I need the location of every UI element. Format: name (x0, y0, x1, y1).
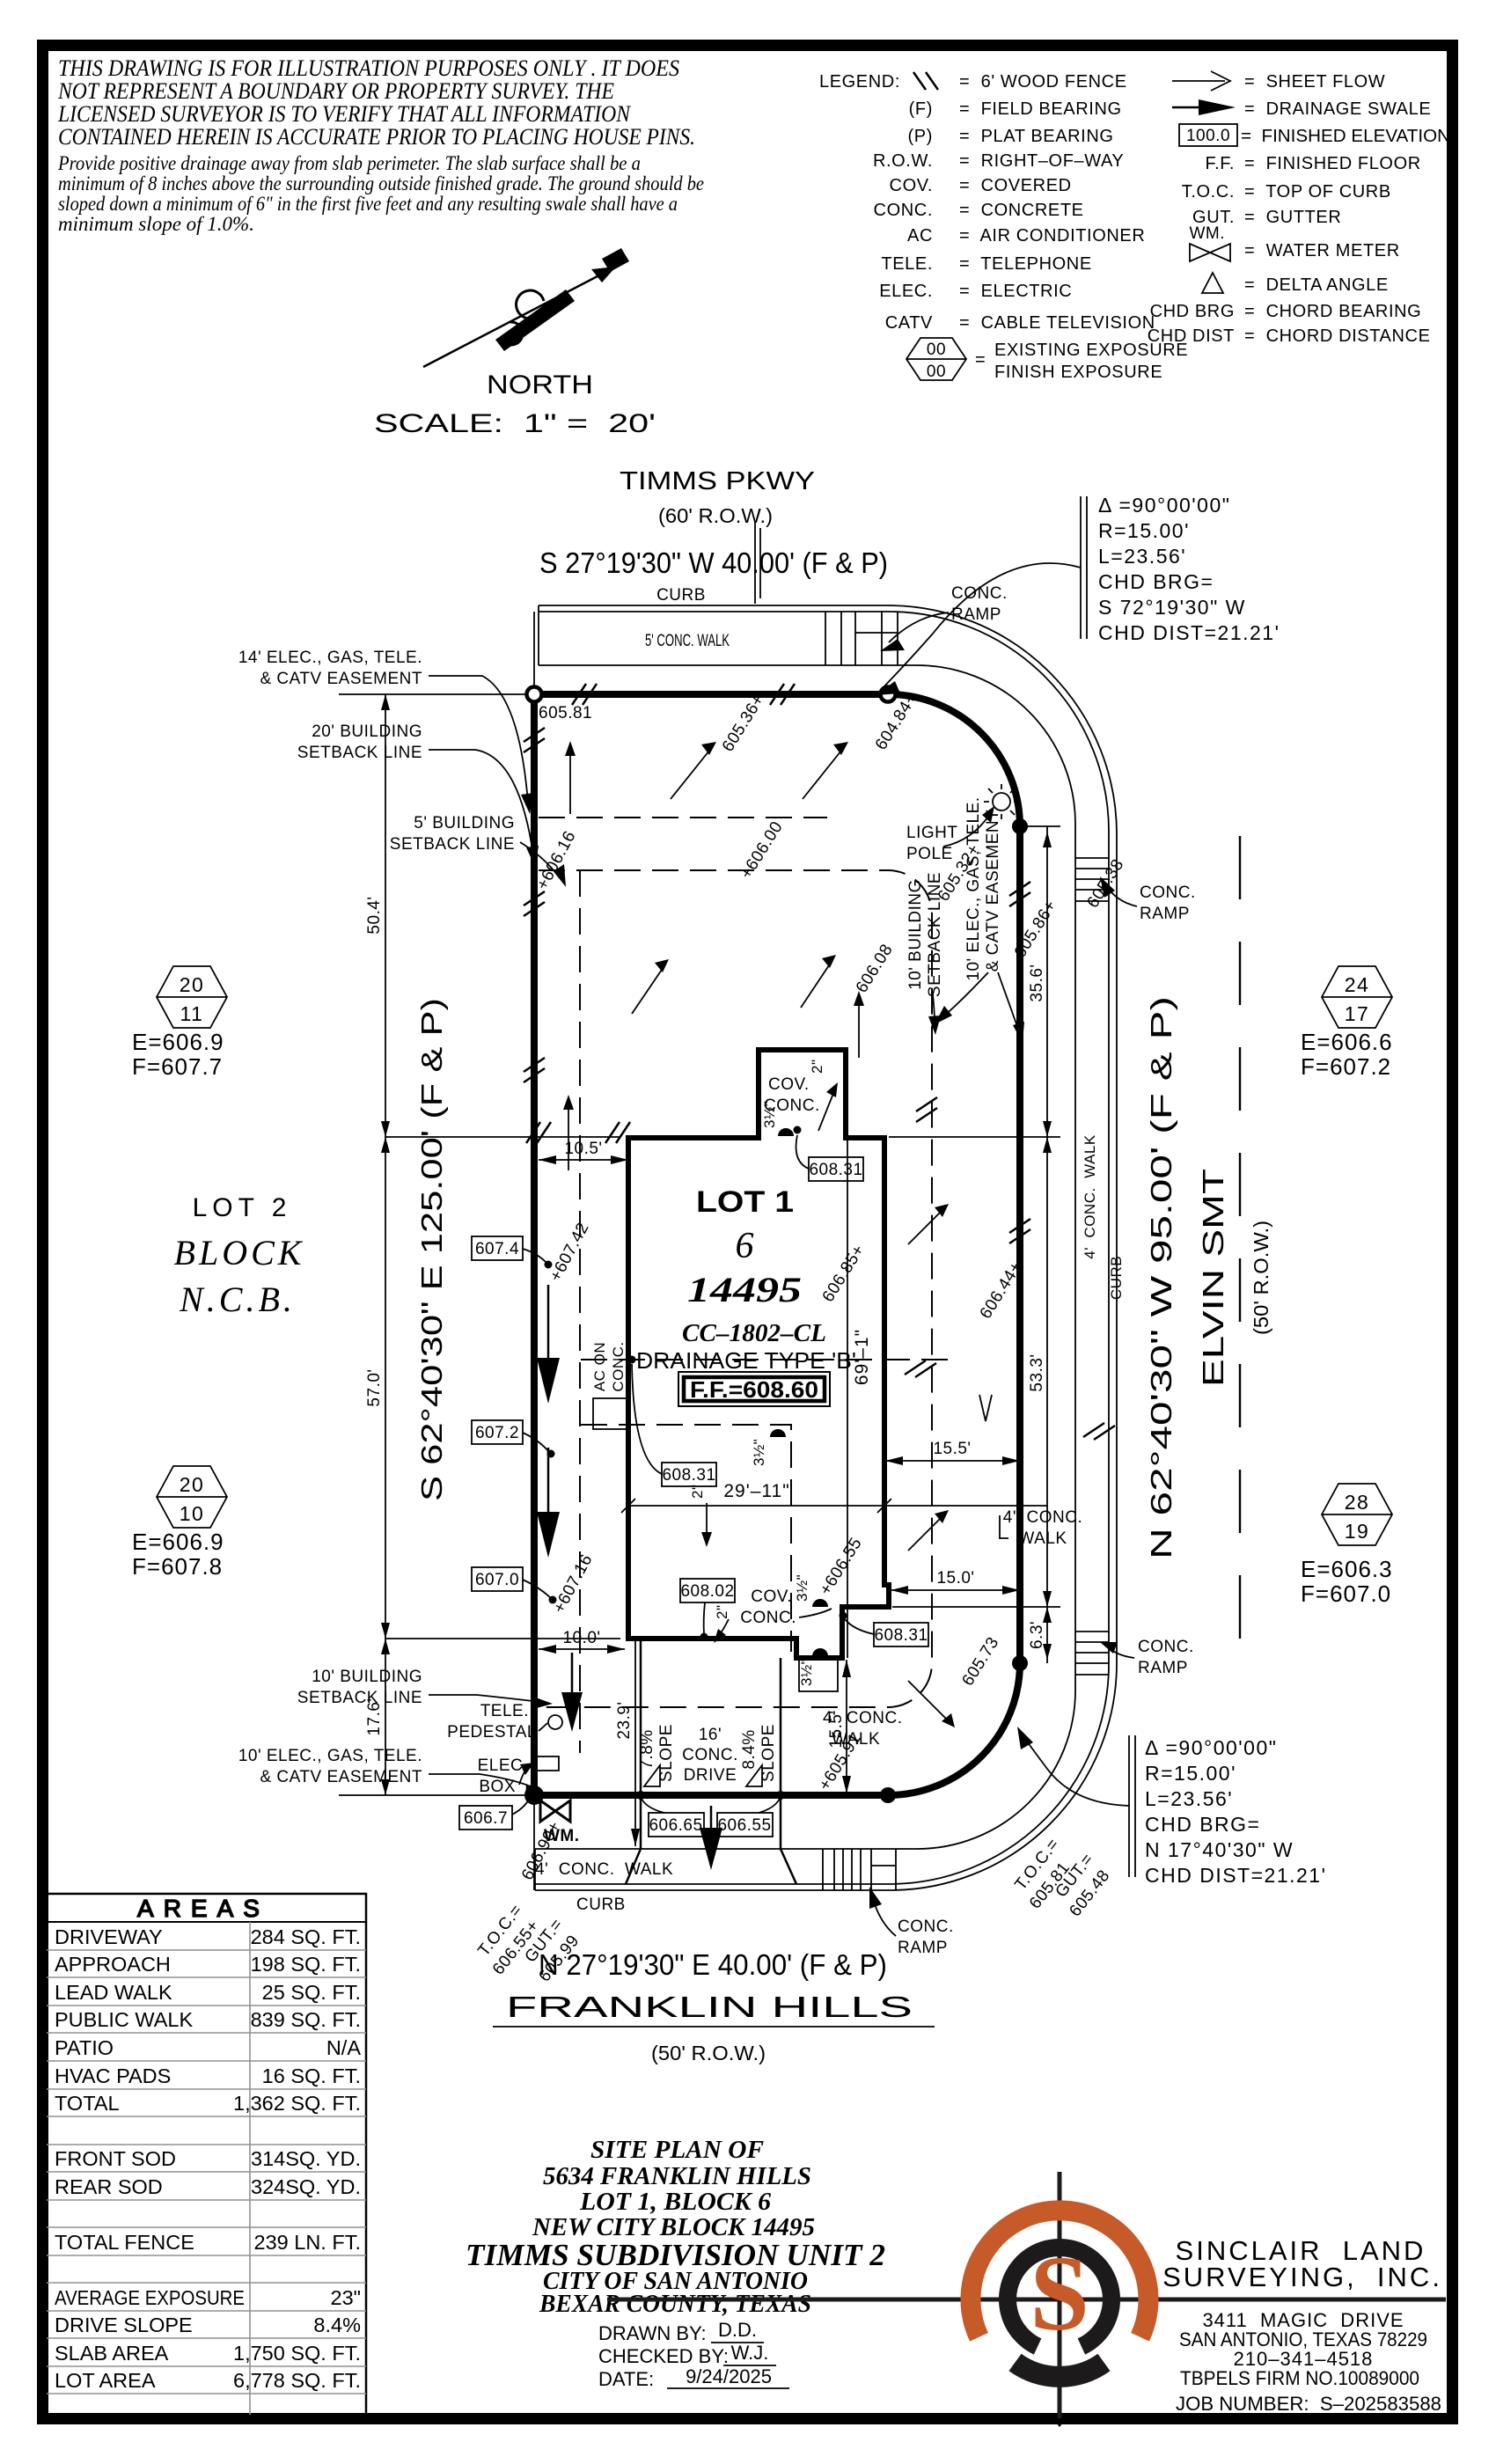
svg-text:10.5': 10.5' (564, 1140, 602, 1158)
svg-text:AREAS: AREAS (137, 1895, 269, 1922)
svg-text:324SQ. YD.: 324SQ. YD. (251, 2175, 361, 2198)
svg-text:= COVERED: = COVERED (959, 176, 1072, 195)
svg-text:CONTAINED HEREIN IS ACCURATE P: CONTAINED HEREIN IS ACCURATE PRIOR TO PL… (58, 124, 695, 150)
svg-text:605.81: 605.81 (539, 704, 592, 722)
svg-text:CHECKED BY:: CHECKED BY: (598, 2345, 729, 2367)
svg-text:14' ELEC., GAS, TELE.: 14' ELEC., GAS, TELE. (238, 649, 422, 667)
svg-text:(P): (P) (908, 127, 933, 146)
svg-text:=: = (975, 350, 986, 370)
svg-text:(50' R.O.W.): (50' R.O.W.) (1250, 1221, 1272, 1335)
svg-text:1,362 SQ. FT.: 1,362 SQ. FT. (233, 2092, 361, 2115)
svg-text:AC ON: AC ON (591, 1342, 608, 1391)
svg-text:29'–11": 29'–11" (723, 1481, 789, 1501)
svg-text:57.0': 57.0' (365, 1368, 384, 1406)
svg-text:Δ =90°00'00": Δ =90°00'00" (1145, 1736, 1277, 1759)
svg-text:E=606.6: E=606.6 (1301, 1029, 1393, 1055)
svg-text:CURB: CURB (656, 586, 706, 605)
svg-text:608.31: 608.31 (809, 1161, 862, 1179)
svg-text:Provide positive drainage away: Provide positive drainage away from slab… (57, 152, 641, 174)
svg-text:2": 2" (809, 1060, 825, 1074)
svg-text:N/A: N/A (326, 2036, 362, 2059)
svg-text:608.02: 608.02 (680, 1582, 734, 1601)
svg-text:2": 2" (689, 1485, 706, 1500)
svg-text:CHD BRG: CHD BRG (1150, 302, 1235, 321)
svg-text:35.6': 35.6' (1028, 964, 1046, 1001)
svg-text:5' BUILDING: 5' BUILDING (414, 814, 515, 832)
svg-text:11: 11 (180, 1002, 204, 1025)
svg-text:DRIVE: DRIVE (684, 1766, 737, 1785)
svg-text:25 SQ. FT.: 25 SQ. FT. (262, 1981, 361, 2004)
svg-text:S: S (1030, 2234, 1089, 2353)
svg-text:LOT AREA: LOT AREA (55, 2369, 156, 2392)
svg-text:CONC.: CONC. (951, 584, 1008, 603)
svg-text:= RIGHT–OF–WAY: = RIGHT–OF–WAY (959, 151, 1124, 171)
svg-text:COV.: COV. (751, 1588, 792, 1606)
svg-text:APPROACH: APPROACH (55, 1953, 171, 1976)
svg-text:15.0': 15.0' (936, 1569, 974, 1588)
svg-text:COV.: COV. (768, 1075, 810, 1094)
svg-text:N 17°40'30" W: N 17°40'30" W (1145, 1838, 1294, 1861)
svg-text:CONC.: CONC. (682, 1746, 738, 1764)
svg-text:6: 6 (736, 1226, 754, 1266)
svg-text:CHD DIST: CHD DIST (1148, 326, 1235, 346)
svg-text:WM.: WM. (1189, 224, 1225, 243)
svg-text:17: 17 (1345, 1002, 1370, 1025)
svg-text:10: 10 (180, 1502, 205, 1525)
svg-text:3½": 3½" (761, 1101, 778, 1128)
svg-text:DATE:: DATE: (598, 2368, 654, 2390)
svg-text:= TOP OF CURB: = TOP OF CURB (1244, 182, 1391, 202)
svg-text:T.O.C.: T.O.C. (1182, 182, 1235, 202)
svg-text:= GUTTER: = GUTTER (1244, 208, 1341, 227)
svg-text:Δ =90°00'00": Δ =90°00'00" (1098, 494, 1230, 517)
svg-text:= DRAINAGE SWALE: = DRAINAGE SWALE (1244, 99, 1431, 119)
svg-text:TELE.: TELE. (480, 1702, 529, 1720)
svg-text:= ELECTRIC: = ELECTRIC (959, 282, 1072, 301)
svg-text:F=607.8: F=607.8 (132, 1553, 223, 1580)
svg-text:DRIVE SLOPE: DRIVE SLOPE (55, 2314, 193, 2336)
svg-text:S 27°19'30" W 40.00' (F & P): S 27°19'30" W 40.00' (F & P) (539, 546, 888, 579)
svg-text:CC–1802–CL: CC–1802–CL (682, 1320, 826, 1347)
svg-text:20: 20 (180, 1473, 205, 1496)
svg-text:16 SQ. FT.: 16 SQ. FT. (262, 2064, 361, 2087)
svg-text:SCALE: 1" = 20': SCALE: 1" = 20' (374, 409, 656, 438)
svg-text:608.31: 608.31 (662, 1466, 715, 1485)
svg-text:REAR SOD: REAR SOD (55, 2175, 163, 2198)
svg-text:ELVIN SMT: ELVIN SMT (1197, 1169, 1229, 1387)
svg-text:R.O.W.: R.O.W. (873, 151, 933, 171)
svg-text:NOT REPRESENT A BOUNDARY OR PR: NOT REPRESENT A BOUNDARY OR PROPERTY SUR… (57, 78, 614, 104)
svg-text:= TELEPHONE: = TELEPHONE (959, 254, 1092, 274)
svg-text:608.31: 608.31 (874, 1626, 928, 1645)
svg-text:198 SQ. FT.: 198 SQ. FT. (251, 1953, 361, 1976)
svg-text:CONC.: CONC. (1140, 884, 1196, 902)
svg-text:5634 FRANKLIN HILLS: 5634 FRANKLIN HILLS (543, 2163, 811, 2190)
svg-text:2": 2" (714, 1605, 730, 1620)
svg-text:69'–1": 69'–1" (852, 1329, 872, 1385)
svg-text:F.F.=608.60: F.F.=608.60 (690, 1376, 818, 1403)
svg-text:BLOCK: BLOCK (174, 1233, 305, 1272)
svg-text:SURVEYING, INC.: SURVEYING, INC. (1162, 2262, 1442, 2292)
svg-text:3½": 3½" (794, 1574, 810, 1602)
svg-text:FRONT SOD: FRONT SOD (55, 2147, 176, 2170)
svg-text:F.F.: F.F. (1205, 154, 1235, 173)
svg-text:LEGEND:: LEGEND: (819, 72, 900, 92)
svg-text:POLE: POLE (906, 845, 953, 863)
svg-text:& CATV EASEMENT: & CATV EASEMENT (260, 670, 422, 688)
svg-text:SITE PLAN OF: SITE PLAN OF (590, 2137, 764, 2164)
svg-text:D.D.: D.D. (718, 2319, 757, 2341)
svg-text:CONC.: CONC. (610, 1341, 627, 1391)
svg-text:= WATER METER: = WATER METER (1244, 241, 1400, 260)
svg-text:SETBACK LINE: SETBACK LINE (926, 872, 944, 997)
svg-text:RAMP: RAMP (1140, 905, 1190, 923)
svg-text:(50' R.O.W.): (50' R.O.W.) (651, 2042, 766, 2064)
svg-text:RAMP: RAMP (1138, 1659, 1188, 1677)
svg-text:28: 28 (1345, 1491, 1370, 1514)
svg-text:minimum slope of 1.0%.: minimum slope of 1.0%. (58, 213, 254, 235)
svg-text:= CABLE TELEVISION: = CABLE TELEVISION (959, 313, 1155, 333)
svg-text:606.65: 606.65 (649, 1816, 702, 1835)
svg-text:20: 20 (180, 973, 205, 996)
svg-text:S 72°19'30" W: S 72°19'30" W (1098, 596, 1246, 619)
svg-text:CHD BRG=: CHD BRG= (1145, 1813, 1261, 1836)
svg-text:4' CONC.: 4' CONC. (1003, 1508, 1082, 1527)
svg-text:6,778 SQ. FT.: 6,778 SQ. FT. (233, 2369, 361, 2392)
svg-text:= SHEET FLOW: = SHEET FLOW (1244, 72, 1385, 92)
svg-text:E=606.9: E=606.9 (132, 1029, 224, 1055)
svg-text:= FIELD BEARING: = FIELD BEARING (959, 99, 1122, 119)
svg-text:F=607.2: F=607.2 (1301, 1053, 1391, 1080)
svg-text:SETBACK LINE: SETBACK LINE (390, 835, 515, 854)
svg-text:LEAD WALK: LEAD WALK (55, 1981, 172, 2004)
svg-text:9/24/2025: 9/24/2025 (686, 2365, 772, 2387)
svg-text:8.4%: 8.4% (313, 2314, 361, 2336)
svg-text:= CONCRETE: = CONCRETE (959, 201, 1084, 220)
svg-text:S 62°40'30" E 125.00' (F & P): S 62°40'30" E 125.00' (F & P) (415, 998, 448, 1501)
svg-text:10' ELEC., GAS, TELE.: 10' ELEC., GAS, TELE. (964, 796, 983, 980)
svg-text:DRIVEWAY: DRIVEWAY (55, 1925, 163, 1948)
svg-text:L=23.56': L=23.56' (1098, 545, 1186, 568)
svg-text:F=607.0: F=607.0 (1301, 1580, 1391, 1607)
svg-text:= CHORD DISTANCE: = CHORD DISTANCE (1244, 326, 1431, 346)
svg-text:839 SQ. FT.: 839 SQ. FT. (251, 2008, 361, 2031)
svg-text:BEXAR COUNTY, TEXAS: BEXAR COUNTY, TEXAS (539, 2291, 811, 2318)
svg-text:RAMP: RAMP (951, 605, 1001, 624)
svg-text:DRAINAGE TYPE 'B': DRAINAGE TYPE 'B' (636, 1347, 856, 1374)
svg-text:1,750 SQ. FT.: 1,750 SQ. FT. (233, 2342, 361, 2365)
svg-text:COV.: COV. (890, 176, 933, 195)
svg-text:10' ELEC., GAS, TELE.: 10' ELEC., GAS, TELE. (238, 1747, 422, 1765)
svg-text:14495: 14495 (687, 1270, 802, 1309)
svg-text:CURB: CURB (1108, 1256, 1125, 1300)
svg-text:607.0: 607.0 (475, 1571, 519, 1589)
svg-text:LIGHT: LIGHT (906, 824, 957, 842)
svg-text:CHD DIST=21.21': CHD DIST=21.21' (1145, 1864, 1327, 1887)
svg-text:50.4': 50.4' (365, 896, 384, 934)
svg-text:TELE.: TELE. (881, 254, 933, 274)
svg-text:HVAC PADS: HVAC PADS (55, 2064, 171, 2087)
svg-text:WALK: WALK (832, 1730, 880, 1749)
svg-text:10.0': 10.0' (562, 1629, 600, 1647)
svg-text:LOT 1, BLOCK 6: LOT 1, BLOCK 6 (579, 2189, 771, 2216)
svg-text:R=15.00': R=15.00' (1145, 1762, 1236, 1785)
svg-text:R=15.00': R=15.00' (1098, 519, 1190, 542)
svg-text:PEDESTAL: PEDESTAL (447, 1723, 537, 1742)
svg-text:606.7: 606.7 (464, 1809, 508, 1828)
svg-text:= DELTA ANGLE: = DELTA ANGLE (1244, 275, 1389, 295)
svg-text:16': 16' (699, 1726, 722, 1744)
svg-text:E=606.3: E=606.3 (1301, 1556, 1393, 1582)
svg-text:N 62°40'30" W 95.00' (F & P): N 62°40'30" W 95.00' (F & P) (1145, 996, 1177, 1559)
svg-text:LOT 2: LOT 2 (193, 1193, 292, 1222)
svg-text:314SQ. YD.: 314SQ. YD. (251, 2147, 361, 2170)
svg-text:WALK: WALK (1018, 1529, 1067, 1548)
svg-text:= AIR CONDITIONER: = AIR CONDITIONER (959, 226, 1145, 246)
svg-text:E=606.9: E=606.9 (132, 1529, 224, 1555)
svg-text:23.9': 23.9' (615, 1701, 634, 1739)
svg-text:15.5': 15.5' (933, 1440, 971, 1458)
svg-text:= CHORD BEARING: = CHORD BEARING (1244, 302, 1421, 321)
svg-text:CURB: CURB (576, 1896, 626, 1914)
svg-text:CHD DIST=21.21': CHD DIST=21.21' (1098, 621, 1280, 644)
svg-text:& CATV EASEMENT: & CATV EASEMENT (984, 810, 1002, 972)
svg-text:5' CONC. WALK: 5' CONC. WALK (645, 632, 730, 650)
svg-text:3½": 3½" (751, 1439, 767, 1466)
svg-text:= FINISHED ELEVATION: = FINISHED ELEVATION (1241, 127, 1450, 146)
svg-text:284 SQ. FT.: 284 SQ. FT. (251, 1925, 361, 1948)
svg-text:= 6' WOOD FENCE: = 6' WOOD FENCE (959, 72, 1127, 92)
svg-text:sloped down a minimum of 6" in: sloped down a minimum of 6" in the first… (58, 193, 678, 215)
svg-text:4' CONC. WALK: 4' CONC. WALK (1082, 1134, 1098, 1259)
svg-text:N 27°19'30" E 40.00' (F & P): N 27°19'30" E 40.00' (F & P) (539, 1948, 887, 1981)
svg-text:23": 23" (331, 2286, 361, 2309)
svg-text:3½": 3½" (798, 1659, 815, 1686)
svg-text:ELEC.: ELEC. (478, 1756, 528, 1775)
svg-text:ELEC.: ELEC. (879, 282, 933, 301)
svg-text:PUBLIC WALK: PUBLIC WALK (55, 2008, 193, 2031)
svg-text:20' BUILDING: 20' BUILDING (312, 722, 422, 741)
svg-text:606.55: 606.55 (717, 1816, 771, 1835)
svg-text:53.3': 53.3' (1028, 1353, 1046, 1391)
svg-text:239 LN. FT.: 239 LN. FT. (254, 2231, 361, 2254)
svg-text:DRAWN BY:: DRAWN BY: (598, 2322, 707, 2344)
svg-text:6.3': 6.3' (1028, 1621, 1046, 1649)
svg-text:NORTH: NORTH (487, 370, 593, 400)
svg-text:10' BUILDING: 10' BUILDING (312, 1668, 422, 1686)
svg-text:= FINISHED FLOOR: = FINISHED FLOOR (1244, 154, 1421, 173)
svg-text:W.J.: W.J. (731, 2342, 769, 2364)
svg-text:TOTAL FENCE: TOTAL FENCE (55, 2231, 194, 2254)
svg-text:AC: AC (907, 226, 933, 246)
svg-text:4' CONC.: 4' CONC. (823, 1709, 902, 1727)
svg-text:10' BUILDING: 10' BUILDING (906, 879, 925, 990)
svg-text:CONC.: CONC. (1138, 1638, 1194, 1656)
svg-text:00: 00 (927, 341, 946, 359)
svg-text:CONC.: CONC. (874, 201, 933, 220)
svg-text:= PLAT BEARING: = PLAT BEARING (959, 127, 1114, 146)
svg-text:L=23.56': L=23.56' (1145, 1787, 1233, 1810)
svg-text:24: 24 (1345, 973, 1370, 996)
svg-text:CHD BRG=: CHD BRG= (1098, 570, 1214, 593)
svg-text:TOTAL: TOTAL (55, 2092, 120, 2115)
svg-text:& CATV EASEMENT: & CATV EASEMENT (260, 1768, 422, 1786)
svg-text:SETBACK LINE: SETBACK LINE (297, 744, 422, 762)
svg-text:CONC.: CONC. (898, 1918, 954, 1936)
svg-text:SLAB AREA: SLAB AREA (55, 2342, 169, 2365)
svg-text:AVERAGE EXPOSURE: AVERAGE EXPOSURE (55, 2286, 245, 2309)
svg-text:FINISH EXPOSURE: FINISH EXPOSURE (994, 363, 1162, 382)
svg-text:4' CONC. WALK: 4' CONC. WALK (535, 1860, 673, 1879)
svg-text:PATIO: PATIO (55, 2036, 114, 2059)
svg-text:LICENSED SURVEYOR IS TO VERIFY: LICENSED SURVEYOR IS TO VERIFY THAT ALL … (57, 101, 631, 127)
svg-text:TBPELS FIRM NO.10089000: TBPELS FIRM NO.10089000 (1180, 2367, 1419, 2389)
svg-text:8.4%: 8.4% (740, 1729, 759, 1769)
svg-text:00: 00 (927, 363, 946, 381)
svg-text:100.0: 100.0 (1186, 127, 1230, 145)
svg-text:CONC.: CONC. (740, 1609, 796, 1627)
svg-text:FRANKLIN HILLS: FRANKLIN HILLS (506, 1991, 913, 2023)
svg-text:CATV: CATV (885, 313, 933, 333)
svg-text:JOB NUMBER: S–202583588: JOB NUMBER: S–202583588 (1176, 2393, 1441, 2415)
svg-text:minimum of 8 inches above the: minimum of 8 inches above the surroundin… (58, 172, 704, 194)
svg-text:607.4: 607.4 (475, 1240, 519, 1258)
svg-text:F=607.7: F=607.7 (132, 1053, 223, 1080)
svg-text:TIMMS PKWY: TIMMS PKWY (620, 467, 815, 495)
svg-text:RAMP: RAMP (898, 1939, 948, 1957)
svg-text:(F): (F) (909, 99, 933, 119)
svg-text:THIS DRAWING IS FOR ILLUSTRATI: THIS DRAWING IS FOR ILLUSTRATION PURPOSE… (58, 55, 679, 81)
svg-text:SETBACK LINE: SETBACK LINE (297, 1689, 422, 1707)
svg-text:LOT 1: LOT 1 (696, 1185, 794, 1219)
svg-text:19: 19 (1345, 1520, 1370, 1543)
svg-text:607.2: 607.2 (475, 1424, 519, 1442)
svg-text:7.8%: 7.8% (638, 1729, 656, 1769)
svg-text:N.C.B.: N.C.B. (179, 1280, 296, 1319)
